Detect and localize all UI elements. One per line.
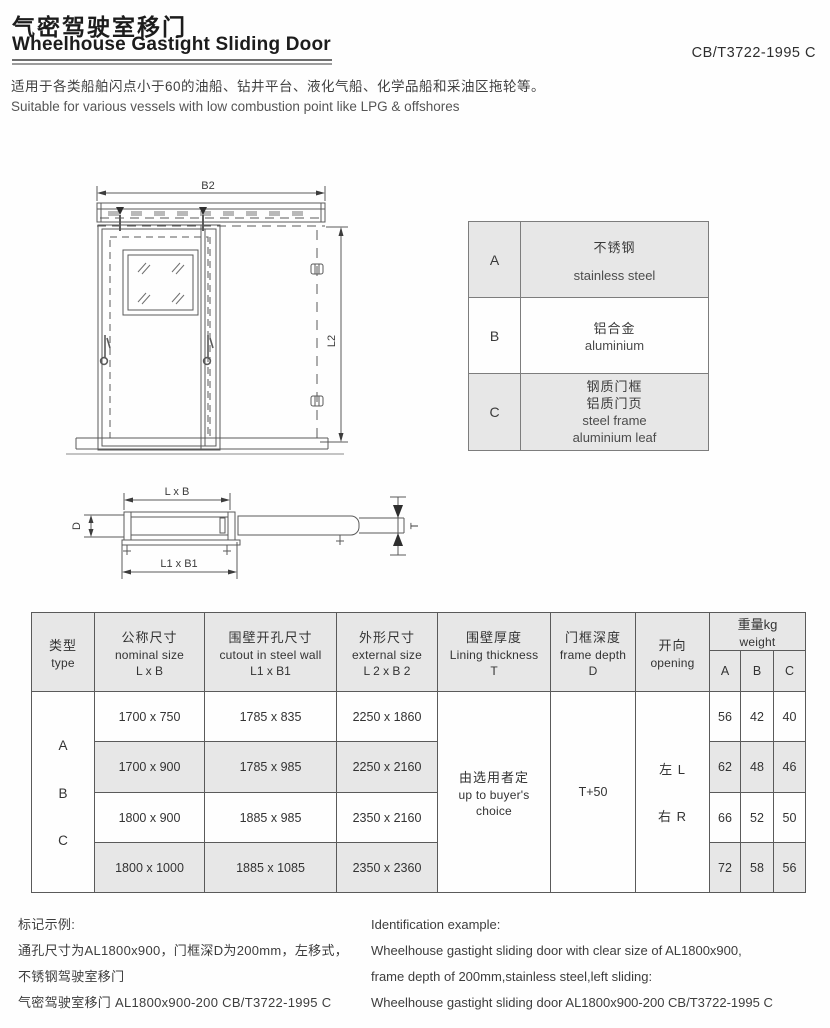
type-letter-a: A — [32, 738, 94, 753]
material-zh: 钢质门框 — [523, 378, 706, 395]
type-letter-b: B — [32, 786, 94, 801]
cell-lining-merged: 由选用者定 up to buyer's choice — [438, 692, 551, 893]
material-row-c: C 钢质门框 铝质门页 steel frame aluminium leaf — [469, 374, 709, 451]
footer-line: Identification example: — [371, 912, 821, 938]
cell-depth-merged: T+50 — [551, 692, 636, 893]
cell-nominal: 1800 x 900 — [95, 793, 205, 843]
plan-hanger-far — [336, 535, 344, 545]
material-value: 钢质门框 铝质门页 steel frame aluminium leaf — [521, 374, 709, 451]
cell-weight-a: 72 — [710, 843, 741, 893]
spec-header-row-1: 类型 type 公称尺寸 nominal size L x B 围壁开孔尺寸 c… — [32, 613, 806, 651]
door-leaf — [98, 225, 220, 450]
identification-example-zh: 标记示例: 通孔尺寸为AL1800x900，门框深D为200mm，左移式， 不锈… — [18, 912, 366, 1016]
door-hanger-right — [199, 207, 207, 231]
spec-row-1: A B C 1700 x 750 1785 x 835 2250 x 1860 … — [32, 692, 806, 742]
catalog-page: 气密驾驶室移门 Wheelhouse Gastight Sliding Door… — [0, 0, 830, 1028]
header-external-size: 外形尺寸 external size L 2 x B 2 — [337, 613, 438, 692]
header-weight: 重量kg weight — [710, 613, 806, 651]
dim-lxb-label: L x B — [165, 486, 190, 498]
cell-weight-b: 52 — [741, 793, 774, 843]
plan-hanger-left — [123, 545, 131, 555]
title-underline — [12, 59, 332, 65]
header-weight-b: B — [741, 651, 774, 692]
material-row-b: B 铝合金 aluminium — [469, 298, 709, 374]
cell-weight-c: 50 — [774, 793, 806, 843]
material-en: steel frame — [523, 412, 706, 429]
page-title-en: Wheelhouse Gastight Sliding Door — [12, 34, 331, 56]
header-weight-a: A — [710, 651, 741, 692]
front-view-drawing: B2 L2 — [58, 175, 380, 473]
cell-nominal: 1700 x 750 — [95, 692, 205, 742]
dim-t-label: T — [409, 522, 421, 529]
header-frame-depth: 门框深度 frame depth D — [551, 613, 636, 692]
cell-external: 2250 x 1860 — [337, 692, 438, 742]
footer-line: 不锈钢驾驶室移门 — [18, 964, 366, 990]
header-nominal-size: 公称尺寸 nominal size L x B — [95, 613, 205, 692]
header-cutout: 围壁开孔尺寸 cutout in steel wall L1 x B1 — [205, 613, 337, 692]
dim-d-label: D — [71, 522, 83, 530]
header-type: 类型 type — [32, 613, 95, 692]
door-hanger-left — [116, 207, 124, 231]
material-zh: 不锈钢 — [523, 237, 706, 256]
cell-cutout: 1885 x 985 — [205, 793, 337, 843]
spec-table: 类型 type 公称尺寸 nominal size L x B 围壁开孔尺寸 c… — [31, 612, 806, 893]
dim-l2-label: L2 — [326, 335, 338, 347]
material-zh: 铝质门页 — [523, 395, 706, 412]
material-en: aluminium — [523, 337, 706, 354]
type-column: A B C — [32, 692, 95, 893]
cell-weight-c: 56 — [774, 843, 806, 893]
door-window — [123, 250, 198, 315]
type-letter-c: C — [32, 833, 94, 848]
material-zh: 铝合金 — [523, 318, 706, 337]
material-table: A 不锈钢 stainless steel B 铝合金 aluminium C … — [468, 221, 709, 451]
cell-external: 2250 x 2160 — [337, 742, 438, 793]
standard-code: CB/T3722-1995 C — [692, 45, 816, 61]
material-en: aluminium leaf — [523, 429, 706, 446]
plan-view-drawing: L x B L1 x B1 D T — [60, 475, 432, 597]
dim-b2-label: B2 — [201, 180, 214, 192]
glass-hatch-marks — [138, 263, 184, 304]
footer-line: 通孔尺寸为AL1800x900，门框深D为200mm，左移式， — [18, 938, 366, 964]
footer-line: Wheelhouse gastight sliding door AL1800x… — [371, 990, 821, 1016]
rail-segments — [108, 211, 303, 216]
header-opening: 开向 opening — [636, 613, 710, 692]
description-en: Suitable for various vessels with low co… — [11, 99, 459, 114]
frame-section — [124, 512, 235, 540]
cell-opening-merged: 左 L 右 R — [636, 692, 710, 893]
cell-weight-c: 46 — [774, 742, 806, 793]
cell-external: 2350 x 2160 — [337, 793, 438, 843]
open-leaf — [238, 516, 359, 535]
material-row-a: A 不锈钢 stainless steel — [469, 222, 709, 298]
cell-weight-a: 56 — [710, 692, 741, 742]
cell-nominal: 1700 x 900 — [95, 742, 205, 793]
material-value: 铝合金 aluminium — [521, 298, 709, 374]
material-value: 不锈钢 stainless steel — [521, 222, 709, 298]
plan-hanger-right — [223, 545, 231, 555]
header-lining-thickness: 围壁厚度 Lining thickness T — [438, 613, 551, 692]
header-weight-c: C — [774, 651, 806, 692]
cell-weight-b: 58 — [741, 843, 774, 893]
dim-l1xb1-label: L1 x B1 — [160, 558, 197, 570]
footer-line: frame depth of 200mm,stainless steel,lef… — [371, 964, 821, 990]
cell-weight-b: 42 — [741, 692, 774, 742]
footer-line: 气密驾驶室移门 AL1800x900-200 CB/T3722-1995 C — [18, 990, 366, 1016]
cell-weight-a: 62 — [710, 742, 741, 793]
footer-line: Wheelhouse gastight sliding door with cl… — [371, 938, 821, 964]
cell-weight-c: 40 — [774, 692, 806, 742]
material-key: B — [469, 298, 521, 374]
cell-nominal: 1800 x 1000 — [95, 843, 205, 893]
cell-cutout: 1785 x 985 — [205, 742, 337, 793]
cell-cutout: 1885 x 1085 — [205, 843, 337, 893]
identification-example-en: Identification example: Wheelhouse gasti… — [371, 912, 821, 1016]
footer-line: 标记示例: — [18, 912, 366, 938]
cell-cutout: 1785 x 835 — [205, 692, 337, 742]
description-zh: 适用于各类船舶闪点小于60的油船、钻井平台、液化气船、化学品船和采油区拖轮等。 — [11, 75, 545, 95]
material-key: C — [469, 374, 521, 451]
cell-external: 2350 x 2360 — [337, 843, 438, 893]
material-en: stainless steel — [523, 268, 706, 283]
cell-weight-a: 66 — [710, 793, 741, 843]
material-key: A — [469, 222, 521, 298]
cell-weight-b: 48 — [741, 742, 774, 793]
